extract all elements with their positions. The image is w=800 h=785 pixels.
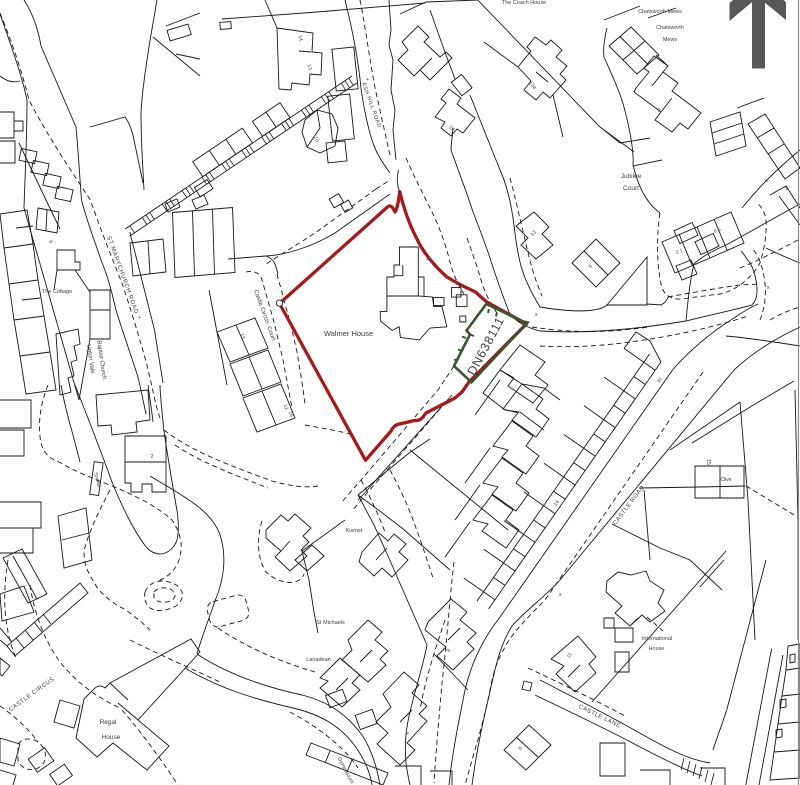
svg-text:Clive: Clive	[720, 477, 731, 483]
svg-text:House: House	[649, 646, 665, 652]
svg-text:Chatsworth: Chatsworth	[656, 25, 684, 31]
svg-text:Mews: Mews	[663, 37, 678, 43]
svg-text:International: International	[642, 636, 672, 642]
svg-text:Court: Court	[623, 185, 639, 192]
svg-text:Regal: Regal	[100, 719, 118, 726]
svg-text:Lanadean: Lanadean	[306, 657, 330, 663]
svg-text:St Michaels: St Michaels	[316, 620, 345, 626]
svg-text:Kismet: Kismet	[346, 528, 363, 534]
svg-text:Jubilee: Jubilee	[621, 173, 642, 180]
svg-text:2: 2	[151, 454, 154, 460]
svg-text:House: House	[102, 734, 121, 741]
svg-text:+: +	[138, 315, 141, 321]
svg-text:Chatsworth Mews: Chatsworth Mews	[638, 9, 682, 15]
svg-text:Walmer House: Walmer House	[324, 329, 373, 338]
svg-text:The Cottage: The Cottage	[42, 289, 72, 295]
svg-text:+: +	[366, 77, 369, 83]
svg-text:15: 15	[705, 459, 711, 465]
svg-text:The Coach House: The Coach House	[502, 0, 546, 6]
